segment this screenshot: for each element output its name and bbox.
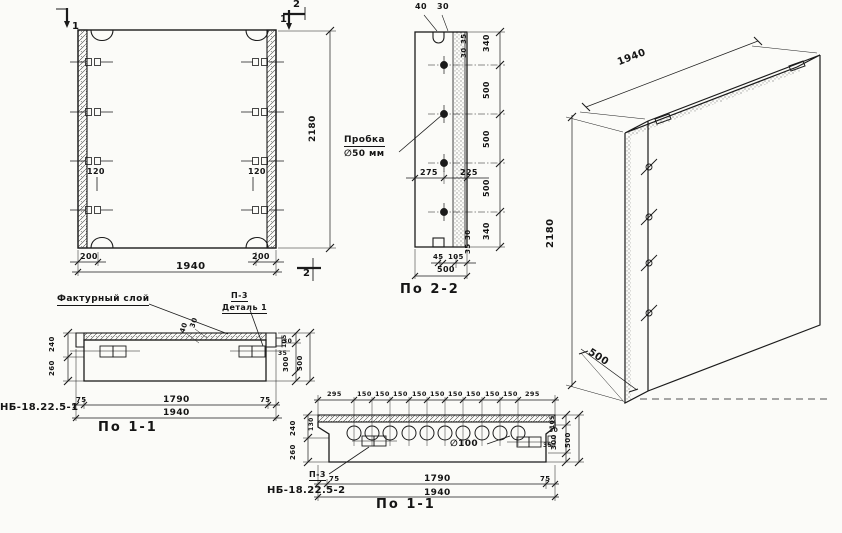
dim-iso-height: 2180 [546,219,556,248]
dim-b-right-d: 300 [551,434,558,450]
dim-b-top-2: 150 [375,391,390,398]
detail-name-a: Деталь 1 [222,304,267,314]
dim-b-right-total: 500 [565,432,572,448]
dim-s22-h0: 340 [483,34,491,52]
dim-b-top-6: 150 [448,391,463,398]
detail-ref-b: П-3 [309,471,326,481]
layer-leader [149,304,228,334]
dim-b-top-8: 150 [485,391,500,398]
panel-name-b: НБ-18.22.5-2 [267,486,345,496]
dim-s22-bot-a: 45 [433,254,444,261]
dim-b-right-c: 105 [550,415,556,429]
dim-b-top-7: 150 [466,391,481,398]
hole-leader [487,436,510,444]
dim-a-bottom-total: 1940 [163,409,190,418]
dim-s22-h4: 340 [483,222,491,240]
dim-b-left-step: 130 [309,417,315,431]
dim-s22-h1: 500 [483,81,491,99]
drawing-sheet: 1 1 2 2 120 120 2180 200 200 1940 40 30 … [0,0,842,533]
detail-ref-a: П-3 [231,292,248,302]
dim-b-top-0: 295 [327,391,342,398]
section-mark-1-right: 1 [280,15,287,25]
dim-b-top-9: 150 [503,391,518,398]
dim-b-bottom-mid: 1790 [424,475,451,484]
section-mark-1-left: 1 [72,22,79,32]
section-mark-2-bottom: 2 [303,269,310,279]
section-1-1b-title: По 1-1 [376,498,436,511]
dim-hook-offset-right: 120 [248,168,266,176]
dim-s22-topside-b: 30 [461,47,468,58]
dim-b-top-4: 150 [412,391,427,398]
axonometric-view [566,37,830,403]
dim-b-left-bottom: 260 [290,444,297,460]
dim-front-width: 1940 [176,262,205,272]
dim-s22-bot-total: 500 [437,266,455,274]
section-mark-2-top: 2 [293,0,300,10]
front-elevation-view [56,7,336,281]
panel-name-a: НБ-18.22.5-1 [0,403,78,413]
dim-s22-mid-right: 225 [460,169,478,177]
iso-dimensions [566,37,817,403]
dim-a-left-top: 240 [49,336,56,352]
dim-s22-botside-b: 35 [465,243,472,254]
section-1-1a-title: По 1-1 [98,421,158,434]
plug-callout-line2: ∅50 мм [344,150,384,159]
dim-edge-right: 200 [252,253,270,261]
front-dimensions [70,27,336,276]
dim-hook-offset-left: 120 [87,168,105,176]
dim-a-right-c: 105 [282,334,288,348]
dim-a-bottom-right: 75 [260,397,271,404]
dim-front-height: 2180 [309,115,318,142]
detail-leader-b [329,447,369,474]
dim-s22-top-a: 40 [415,3,427,11]
hole-callout: ∅100 [450,440,478,449]
top-notch [433,32,444,43]
dim-b-top-5: 150 [430,391,445,398]
dim-b-top-1: 150 [357,391,372,398]
dim-a-left-bottom: 260 [49,360,56,376]
dim-b-bottom-left: 75 [329,476,340,483]
dim-s22-top-b: 30 [437,3,449,11]
drawing-linework [0,0,842,533]
dim-s22-topside-a: 35 [461,33,468,44]
section-2-2-title: По 2-2 [400,283,460,296]
dim-s22-mid-left: 275 [420,169,438,177]
dim-edge-left: 200 [80,253,98,261]
section-marks [56,7,321,281]
layer-callout: Фактурный слой [57,295,149,306]
dim-s22-h3: 500 [483,179,491,197]
lifting-hooks [70,59,284,214]
corner-notch-arcs [91,30,268,248]
dim-a-right-total: 500 [297,355,304,371]
iso-hooks [641,159,657,321]
dim-b-top-3: 150 [393,391,408,398]
dim-s22-h2: 500 [483,130,491,148]
embed-details [70,346,290,357]
dim-a-bottom-mid: 1790 [163,396,190,405]
dim-b-top-10: 295 [525,391,540,398]
bottom-notch [433,238,444,247]
dim-s22-bot-b: 105 [448,254,464,261]
dim-s22-botside-a: 30 [465,229,472,240]
plug-leader [399,115,442,152]
plug-callout-line1: Пробка [344,136,385,147]
dim-b-bottom-right: 75 [540,476,551,483]
dim-b-left-top: 240 [290,420,297,436]
dim-a-right-d: 300 [283,356,290,372]
